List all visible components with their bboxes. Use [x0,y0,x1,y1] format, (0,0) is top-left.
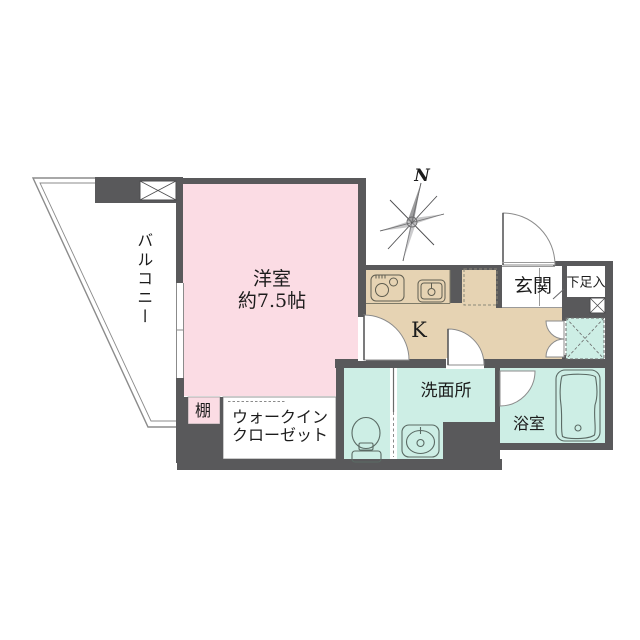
wall-left-bottom-chunk [176,397,188,463]
wic-label: ウォークイン クローゼット [232,409,328,446]
wall-counter-stub [450,270,462,303]
toilet-partition [390,368,397,459]
compass-icon [380,183,444,261]
toilet-floor [344,368,390,459]
balcony-window [176,283,184,378]
wall-toilet-left [336,368,344,459]
compass-north-label: N [414,167,430,187]
balcony-label: バルコニー [134,232,152,327]
wall-room-top [177,178,366,184]
kitchen-label: K [411,318,427,342]
entrance-door-swing [503,213,555,265]
bathroom-label: 浴室 [513,415,545,433]
shoe-storage-label: 下足入 [566,277,605,292]
entrance-label: 玄関 [514,276,552,298]
washroom-label: 洗面所 [421,382,472,402]
storage-x-box [566,318,604,359]
wall-bathroom-bottom [495,443,613,450]
western-room-name: 洋室 [238,269,306,291]
wall-room-right [358,178,366,317]
wall-hall-end-upper [562,297,566,321]
wall-right [605,261,613,450]
floor-plan: バルコニー 洋室 約7.5帖 K 玄関 下足入 洗面所 浴室 棚 ウォークイン … [0,0,640,640]
wic-label-line1: ウォークイン [232,409,328,427]
wall-left-upper [176,177,183,283]
wall-bottom-left-band [177,459,502,470]
western-room-size: 約7.5帖 [238,291,306,313]
shelf-label: 棚 [195,402,211,420]
wic-label-line2: クローゼット [232,427,328,445]
wall-below-shelf [188,424,223,463]
western-room-label: 洋室 約7.5帖 [238,269,306,313]
wall-shelf-wic-divider [220,397,223,424]
floor-plan-drawing [0,0,640,640]
meter-box [590,298,605,313]
pipe-shaft-top-left [140,181,176,200]
balcony-railing [33,178,177,427]
